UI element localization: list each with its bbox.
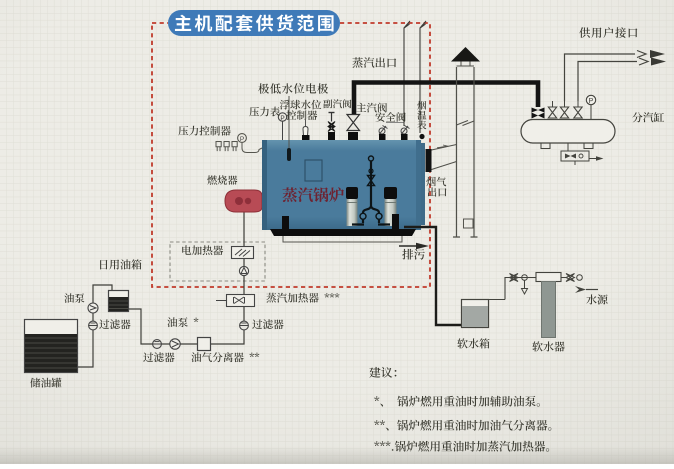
- svg-text:P: P: [240, 136, 244, 143]
- svg-text:P: P: [589, 98, 594, 105]
- svg-text:P: P: [280, 115, 284, 122]
